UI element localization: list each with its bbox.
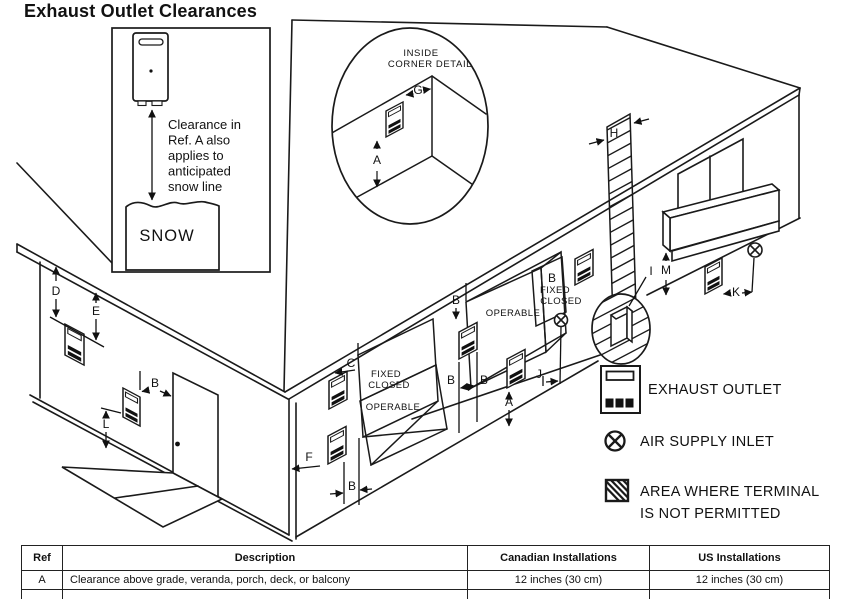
dimension-label-j: J bbox=[536, 367, 542, 381]
dimension-label-a-corner: A bbox=[373, 153, 381, 167]
air-supply-inlet-icon bbox=[606, 432, 625, 451]
header-description: Description bbox=[63, 546, 468, 571]
snow-label: SNOW bbox=[139, 227, 194, 245]
window3-label-closed: CLOSED bbox=[540, 296, 581, 307]
exhaust-outlet-icon bbox=[601, 366, 640, 413]
header-canadian: Canadian Installations bbox=[468, 546, 650, 571]
clearance-table-wrap: Ref Description Canadian Installations U… bbox=[21, 545, 830, 599]
legend-air-label: AIR SUPPLY INLET bbox=[640, 434, 774, 450]
legend-restricted-label-1: AREA WHERE TERMINAL bbox=[640, 484, 819, 500]
dimension-label-l: L bbox=[103, 417, 110, 431]
dimension-label-i: I bbox=[649, 264, 652, 278]
snow-note-line-1: Clearance in bbox=[168, 117, 241, 132]
roof-ridge bbox=[292, 20, 607, 27]
snow-note-line-5: snow line bbox=[168, 179, 222, 194]
snow-note-line-3: applies to bbox=[168, 148, 224, 163]
legend-exhaust-label: EXHAUST OUTLET bbox=[648, 382, 782, 398]
diagram-canvas: FIXED CLOSED OPERABLE OPERABLE B FIXED C… bbox=[0, 0, 841, 599]
dimension-label-h: H bbox=[610, 126, 619, 140]
window1-label-operable: OPERABLE bbox=[366, 402, 420, 413]
dimension-label-c: C bbox=[347, 356, 356, 370]
cell-us: 12 inches (30 cm) bbox=[650, 571, 830, 590]
dimension-label-e: E bbox=[92, 304, 100, 318]
balcony bbox=[663, 139, 779, 261]
page-title: Exhaust Outlet Clearances bbox=[24, 1, 257, 21]
legend: EXHAUST OUTLET AIR SUPPLY INLET AREA WHE… bbox=[596, 366, 819, 522]
window3-label-fixed: FIXED bbox=[540, 285, 570, 296]
exhaust-outlet-4 bbox=[459, 322, 477, 359]
table-row-partial bbox=[22, 590, 830, 599]
exhaust-outlet-door bbox=[123, 388, 140, 426]
table-header-row: Ref Description Canadian Installations U… bbox=[22, 546, 830, 571]
dimension-label-b-door: B bbox=[151, 376, 159, 390]
corner-detail-heading-2: CORNER DETAIL bbox=[388, 59, 472, 70]
cell-description: Clearance above grade, veranda, porch, d… bbox=[63, 571, 468, 590]
inside-corner-detail: INSIDE CORNER DETAIL G A bbox=[330, 28, 488, 224]
window1-label-closed: CLOSED bbox=[368, 380, 409, 391]
exhaust-outlet-2 bbox=[328, 426, 346, 464]
exhaust-outlet-balcony bbox=[705, 258, 722, 294]
dimension-label-m: M bbox=[661, 263, 671, 277]
legend-restricted-label-2: IS NOT PERMITTED bbox=[640, 506, 781, 522]
clearance-table: Ref Description Canadian Installations U… bbox=[21, 545, 830, 599]
roof-valley bbox=[284, 20, 292, 391]
window1-label-fixed: FIXED bbox=[371, 369, 401, 380]
air-supply-inlet-2 bbox=[748, 243, 762, 257]
air-supply-inlet-1 bbox=[555, 314, 568, 327]
door-knob bbox=[175, 442, 180, 447]
window2-label-operable: OPERABLE bbox=[486, 308, 540, 319]
dimension-label-b-w2-left: B bbox=[447, 373, 455, 387]
window3-label-b: B bbox=[548, 271, 556, 285]
roof-line bbox=[17, 163, 112, 263]
cell-ref: A bbox=[22, 571, 63, 590]
corner-detail-heading-1: INSIDE bbox=[403, 48, 438, 59]
dimension-label-a-w2: A bbox=[505, 395, 513, 409]
dimension-label-d: D bbox=[52, 284, 61, 298]
dimension-label-b-w2-top: B bbox=[452, 293, 460, 307]
exhaust-outlet-3 bbox=[575, 249, 593, 285]
dimension-label-f: F bbox=[305, 450, 312, 464]
roof-corner bbox=[799, 88, 800, 95]
dimension-label-k: K bbox=[732, 285, 740, 299]
header-ref: Ref bbox=[22, 546, 63, 571]
snow-inset: Clearance in Ref. A also applies to anti… bbox=[112, 28, 270, 272]
dimension-label-b-w2-right: B bbox=[480, 373, 488, 387]
table-row-a: A Clearance above grade, veranda, porch,… bbox=[22, 571, 830, 590]
snow-note-line-4: anticipated bbox=[168, 164, 231, 179]
roof-hip bbox=[607, 27, 800, 88]
exhaust-outlet-1 bbox=[329, 371, 347, 409]
dimension-label-g: G bbox=[413, 83, 422, 97]
water-heater-icon bbox=[133, 33, 168, 106]
page: FIXED CLOSED OPERABLE OPERABLE B FIXED C… bbox=[0, 0, 841, 599]
snow-note-line-2: Ref. A also bbox=[168, 133, 230, 148]
dimension-label-b-w1: B bbox=[348, 479, 356, 493]
cell-canadian: 12 inches (30 cm) bbox=[468, 571, 650, 590]
header-us: US Installations bbox=[650, 546, 830, 571]
